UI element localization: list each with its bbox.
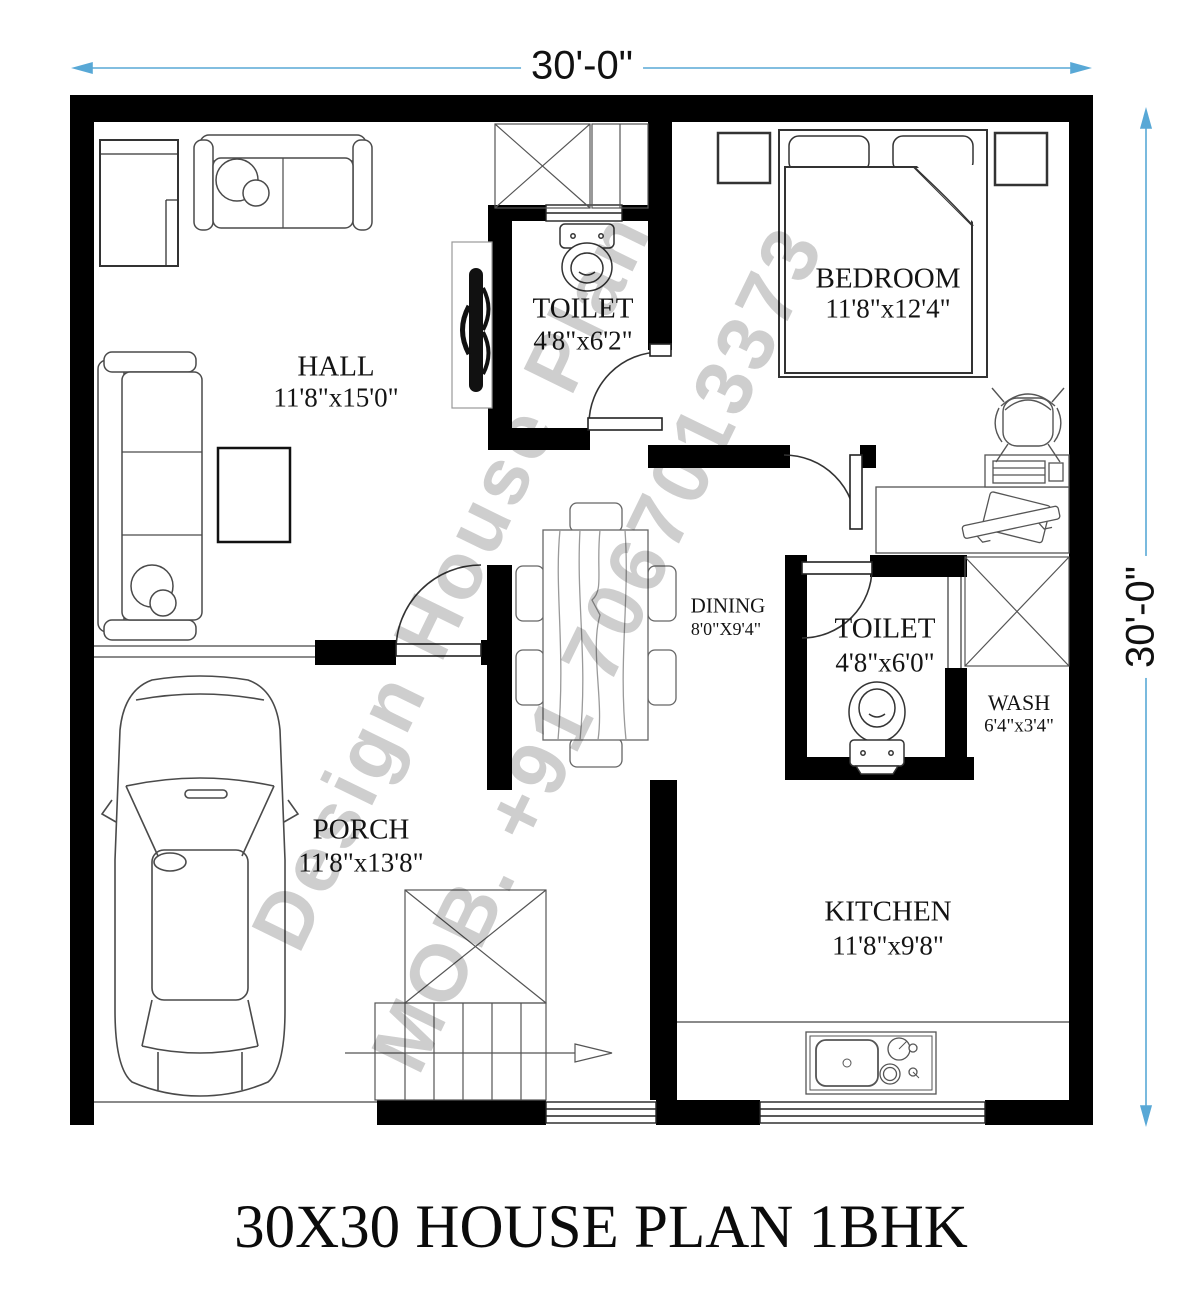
room-label-bedroom: BEDROOM: [815, 265, 960, 294]
room-label-toilet1: TOILET: [533, 295, 634, 324]
wall-outer-top: [70, 95, 1093, 122]
room-size-kitchen: 11'8"x9'8": [832, 933, 944, 960]
closet-x-box: [495, 124, 648, 208]
wall-toilet2-top-l: [785, 555, 803, 577]
wall-toilet1-top-l: [488, 205, 546, 221]
wall-outer-left: [70, 95, 94, 1125]
wall-tv: [452, 242, 492, 408]
wall-toilet1-bottom: [488, 428, 590, 450]
room-label-toilet2: TOILET: [835, 615, 936, 644]
dining-set: [516, 503, 676, 767]
wall-bedroom-hinge: [860, 445, 876, 468]
room-size-bedroom: 11'8"x12'4": [825, 296, 950, 323]
plan-title: 30X30 HOUSE PLAN 1BHK: [234, 1193, 968, 1263]
room-label-hall: HALL: [297, 353, 374, 382]
wall-kitchen-left: [650, 780, 677, 1100]
wall-bottom-corner: [985, 1100, 1093, 1125]
wall-dining-left: [487, 565, 512, 790]
room-size-toilet1: 4'8"x6'2": [533, 328, 632, 355]
sofa-two-seat: [194, 135, 372, 230]
wall-hall-bedroom: [648, 120, 672, 350]
room-size-wash: 6'4"x3'4": [984, 717, 1054, 736]
stairs: [345, 1003, 612, 1100]
wall-toilet2-right: [945, 668, 967, 780]
room-size-porch: 11'8"x13'8": [298, 850, 423, 877]
room-label-wash: WASH: [988, 692, 1050, 714]
room-label-kitchen: KITCHEN: [824, 898, 951, 927]
car: [102, 676, 298, 1096]
wall-bedroom-bottom: [648, 445, 790, 468]
wall-outer-right: [1069, 95, 1093, 1125]
bed: [779, 130, 987, 377]
wall-toilet1-left: [488, 205, 512, 450]
dimension-right: 30'-0": [1119, 556, 1164, 678]
side-table-right: [995, 133, 1047, 185]
wall-hall-divider: [315, 640, 396, 665]
wall-toilet2-left: [785, 555, 807, 780]
coffee-table: [218, 448, 290, 542]
desk: [876, 455, 1069, 553]
room-size-toilet2: 4'8"x6'0": [835, 650, 934, 677]
kitchen-sink: [806, 1032, 936, 1094]
room-size-hall: 11'8"x15'0": [273, 385, 398, 412]
sofa-three-seat: [98, 352, 202, 640]
dimension-top: 30'-0": [521, 44, 643, 89]
shower-x-box: [965, 557, 1069, 666]
room-label-dining: DINING: [691, 596, 766, 617]
toilet-fixture-top: [560, 224, 614, 291]
wall-toilet2-top-r: [870, 555, 967, 577]
tv-cabinet: [100, 140, 178, 266]
floor-plan: HALL 11'8"x15'0" TOILET 4'8"x6'2" BEDROO…: [0, 0, 1200, 1305]
wall-bottom-stairs: [377, 1100, 546, 1125]
room-label-porch: PORCH: [313, 816, 410, 845]
stair-landing: [405, 890, 546, 1003]
room-size-dining: 8'0"X9'4": [691, 620, 761, 638]
desk-chair: [992, 388, 1064, 462]
side-table-left: [718, 133, 770, 183]
wall-bottom-mid: [656, 1100, 760, 1125]
